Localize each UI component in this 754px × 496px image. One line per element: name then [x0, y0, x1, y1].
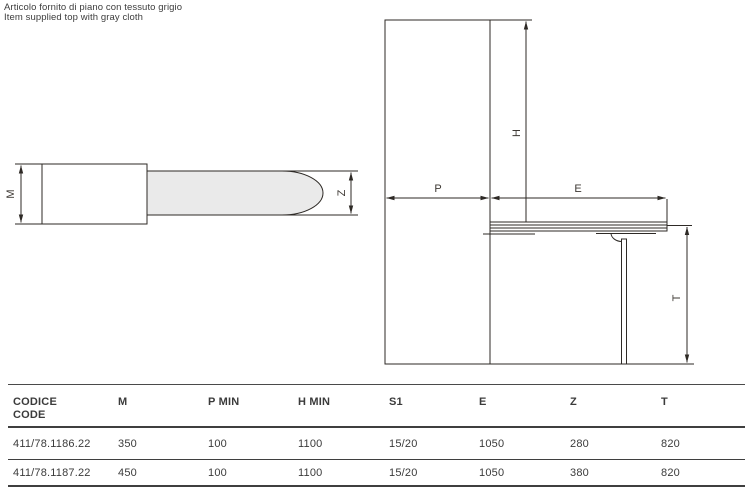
side-view-drawing: [385, 20, 694, 364]
cell-p-min: 100: [203, 460, 293, 485]
housing-box: [42, 164, 147, 224]
cell-codice: 411/78.1186.22: [8, 428, 113, 459]
board-shape: [147, 171, 323, 215]
cell-h-min: 1100: [293, 460, 384, 485]
cell-p-min: 100: [203, 428, 293, 459]
cell-e: 1050: [474, 428, 565, 459]
cell-t: 820: [656, 460, 745, 485]
codice-label: CODICE: [13, 396, 113, 409]
top-view-drawing: [15, 164, 358, 224]
cell-z: 280: [565, 428, 656, 459]
cell-h-min: 1100: [293, 428, 384, 459]
dim-z-label: Z: [336, 189, 348, 196]
cell-z: 380: [565, 460, 656, 485]
column-header-e: E: [474, 385, 565, 426]
dim-p-label: P: [434, 183, 441, 195]
cell-m: 450: [113, 460, 203, 485]
table-row: 411/78.1186.22 350 100 1100 15/20 1050 2…: [8, 428, 745, 460]
support-bracket: [611, 234, 622, 242]
cell-t: 820: [656, 428, 745, 459]
dim-e-label: E: [574, 183, 581, 195]
column-header-p-min: P MIN: [203, 385, 293, 426]
cell-codice: 411/78.1187.22: [8, 460, 113, 485]
support-leg: [622, 239, 627, 364]
dim-t-label: T: [671, 294, 683, 301]
code-label: CODE: [13, 409, 113, 422]
table-row: 411/78.1187.22 450 100 1100 15/20 1050 3…: [8, 460, 745, 487]
column-header-h-min: H MIN: [293, 385, 384, 426]
dim-m-label: M: [5, 189, 17, 198]
tabletop: [490, 222, 667, 231]
column-header-codice: CODICE CODE: [8, 385, 113, 426]
table-header-row: CODICE CODE M P MIN H MIN S1 E Z T: [8, 385, 745, 428]
spec-table: CODICE CODE M P MIN H MIN S1 E Z T 411/7…: [8, 384, 745, 487]
cell-e: 1050: [474, 460, 565, 485]
column-header-s1: S1: [384, 385, 474, 426]
cell-s1: 15/20: [384, 460, 474, 485]
dim-h-label: H: [511, 129, 523, 137]
cell-s1: 15/20: [384, 428, 474, 459]
column-header-m: M: [113, 385, 203, 426]
column-header-z: Z: [565, 385, 656, 426]
column-header-t: T: [656, 385, 745, 426]
cell-m: 350: [113, 428, 203, 459]
